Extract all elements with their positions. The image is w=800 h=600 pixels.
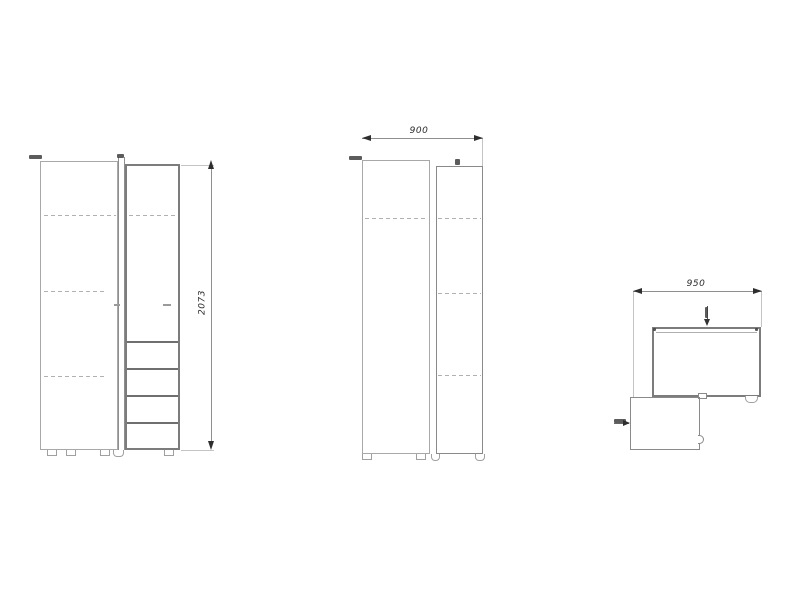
dimension-arrow-left-icon <box>633 288 642 294</box>
dimension-line-horizontal <box>633 291 762 292</box>
technical-drawing-canvas: 2073 900 950 <box>0 0 800 600</box>
dimension-arrow-right-icon <box>623 420 630 426</box>
dimension-arrow-down-icon <box>704 319 710 326</box>
plan-back-panel-line <box>656 332 757 333</box>
plan-return-cabinet-outline <box>630 397 700 450</box>
corner-mark <box>755 328 758 331</box>
dimension-extension-line <box>761 292 762 327</box>
plan-width-dimension-label: 950 <box>681 279 711 290</box>
plan-main-cabinet-outline <box>652 327 761 397</box>
cabinet-foot <box>745 396 758 403</box>
plan-view: 950 <box>0 0 800 600</box>
corner-mark <box>653 328 656 331</box>
plan-hinge-bump <box>698 435 704 444</box>
dimension-extension-line <box>633 292 634 397</box>
tiny-label-mark <box>705 307 708 318</box>
